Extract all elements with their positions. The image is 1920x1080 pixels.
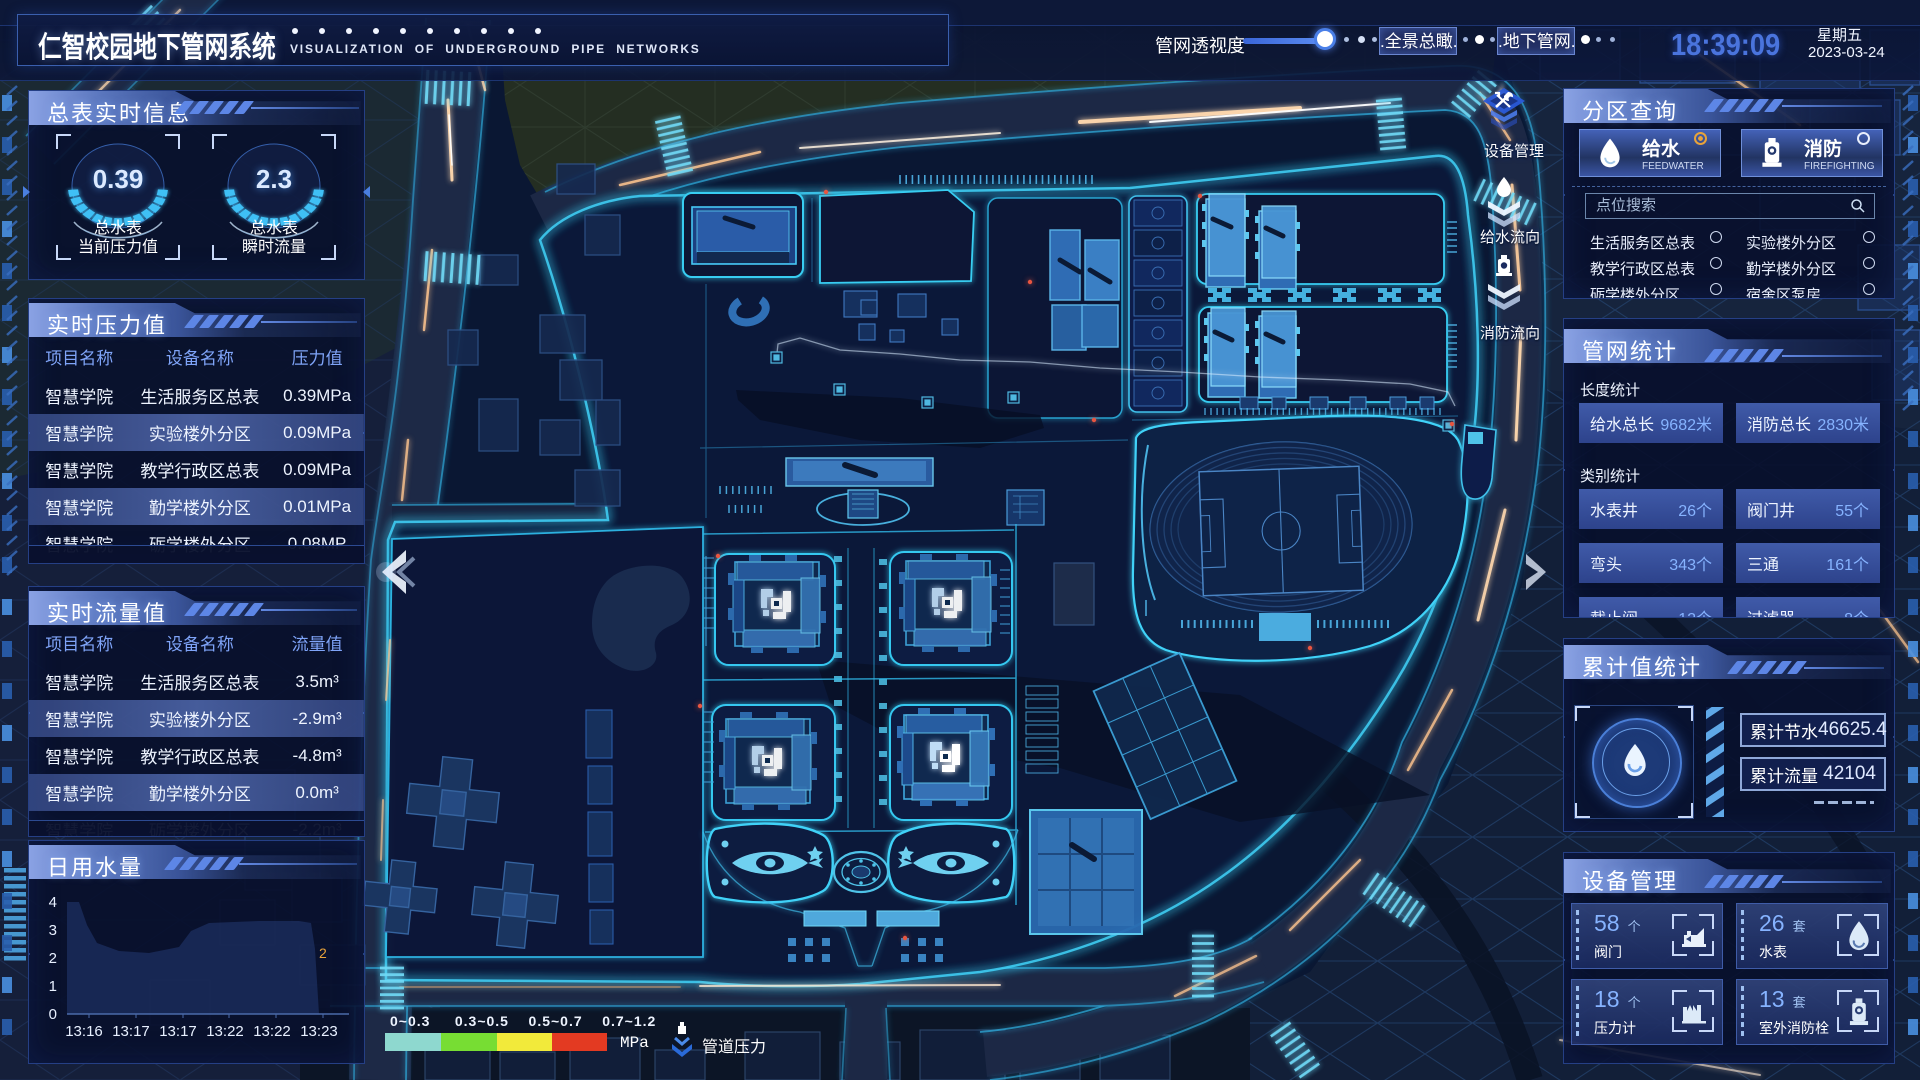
svg-text:3: 3 bbox=[49, 922, 57, 939]
svg-text:2: 2 bbox=[319, 945, 327, 961]
svg-text:13:23: 13:23 bbox=[300, 1023, 338, 1040]
svg-text:4: 4 bbox=[49, 894, 57, 911]
svg-text:13:22: 13:22 bbox=[206, 1023, 244, 1040]
svg-text:2: 2 bbox=[49, 950, 57, 967]
svg-text:0: 0 bbox=[49, 1006, 57, 1023]
svg-text:13:17: 13:17 bbox=[159, 1023, 197, 1040]
svg-text:13:17: 13:17 bbox=[112, 1023, 150, 1040]
svg-text:1: 1 bbox=[49, 978, 57, 995]
svg-text:13:16: 13:16 bbox=[65, 1023, 103, 1040]
svg-text:13:22: 13:22 bbox=[253, 1023, 291, 1040]
